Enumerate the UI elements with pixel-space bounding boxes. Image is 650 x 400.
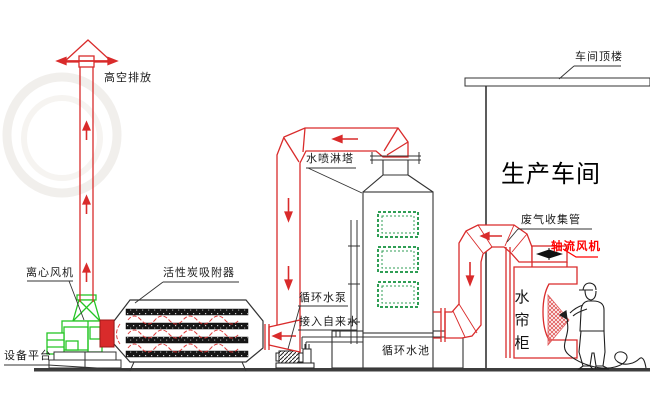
label-centrifugal-fan: 离心风机 xyxy=(26,267,74,279)
label-circulating-pump: 循环水泵 xyxy=(299,292,347,304)
label-tap-water: 接入自来水 xyxy=(299,316,359,328)
label-water-curtain: 水帘柜 xyxy=(512,289,529,361)
watermark xyxy=(7,77,117,193)
exhaust-treatment-diagram: 高空排放 车间顶楼 水喷淋塔 生产车间 废气收集管 轴流风机 水帘柜 离心风机 … xyxy=(0,0,650,400)
label-carbon-adsorber: 活性炭吸附器 xyxy=(163,267,235,279)
fan-inlet-duct xyxy=(100,320,114,347)
label-roof: 车间顶楼 xyxy=(575,51,623,63)
label-circulating-pool: 循环水池 xyxy=(373,345,439,357)
label-workshop: 生产车间 xyxy=(501,162,601,188)
carbon-adsorber xyxy=(114,300,263,371)
workshop-roof xyxy=(465,78,650,86)
label-gas-collect-pipe: 废气收集管 xyxy=(521,214,581,226)
discharge-flow-arrows xyxy=(83,122,90,282)
label-spray-tower: 水喷淋塔 xyxy=(306,153,354,165)
label-equipment-platform: 设备平台 xyxy=(4,350,52,362)
centrifugal-fan xyxy=(47,295,102,354)
rain-cap-icon xyxy=(57,40,117,67)
diagram-lineart xyxy=(0,0,650,400)
label-high-discharge: 高空排放 xyxy=(104,72,152,84)
label-axial-fan: 轴流风机 xyxy=(551,241,601,254)
